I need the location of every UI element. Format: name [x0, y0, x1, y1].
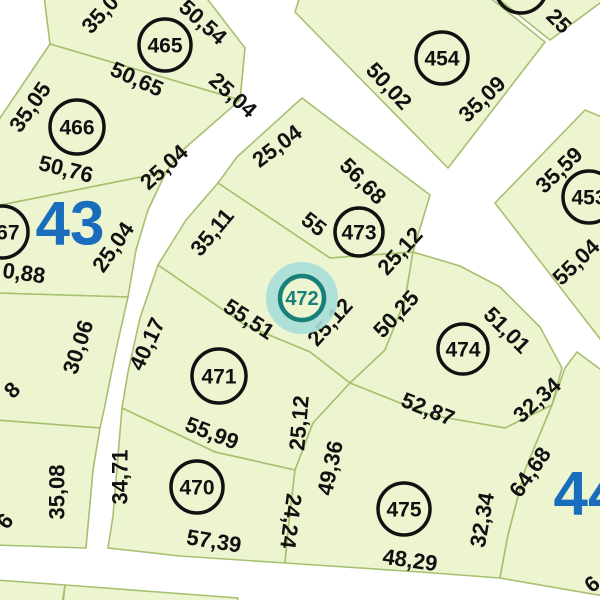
cadastral-map[interactable]: 35,050,5450,6525,0435,0550,7625,0425,040…	[0, 0, 600, 600]
dimension-label: 35,08	[45, 464, 70, 519]
parcel-number-text: 475	[386, 499, 421, 522]
cadastral-map-viewport[interactable]: 35,050,5450,6525,0435,0550,7625,0425,040…	[0, 0, 600, 600]
parcel-number-text: 453	[571, 187, 600, 210]
parcel-number-text: 470	[179, 477, 214, 500]
parcel-sliver-b[interactable]	[63, 585, 238, 600]
parcel-number-text: 473	[341, 222, 376, 245]
block-number-43: 43	[36, 190, 105, 259]
parcel-number-text: 474	[445, 339, 480, 362]
selected-parcel-marker-472[interactable]: 472	[272, 268, 332, 328]
dimension-label: 25,12	[284, 394, 314, 451]
parcel-number-text: 465	[147, 35, 182, 58]
block-number-44: 44	[554, 460, 600, 529]
parcel-number-text: 472	[285, 288, 318, 310]
parcel-number-text: 454	[424, 48, 459, 71]
parcel-number-text: 467	[0, 222, 20, 245]
parcel-number-text: 466	[59, 117, 94, 140]
parcel-sliver-a[interactable]	[0, 580, 65, 600]
dimension-label: 34,71	[108, 449, 133, 504]
parcel-number-text: 471	[201, 366, 236, 389]
